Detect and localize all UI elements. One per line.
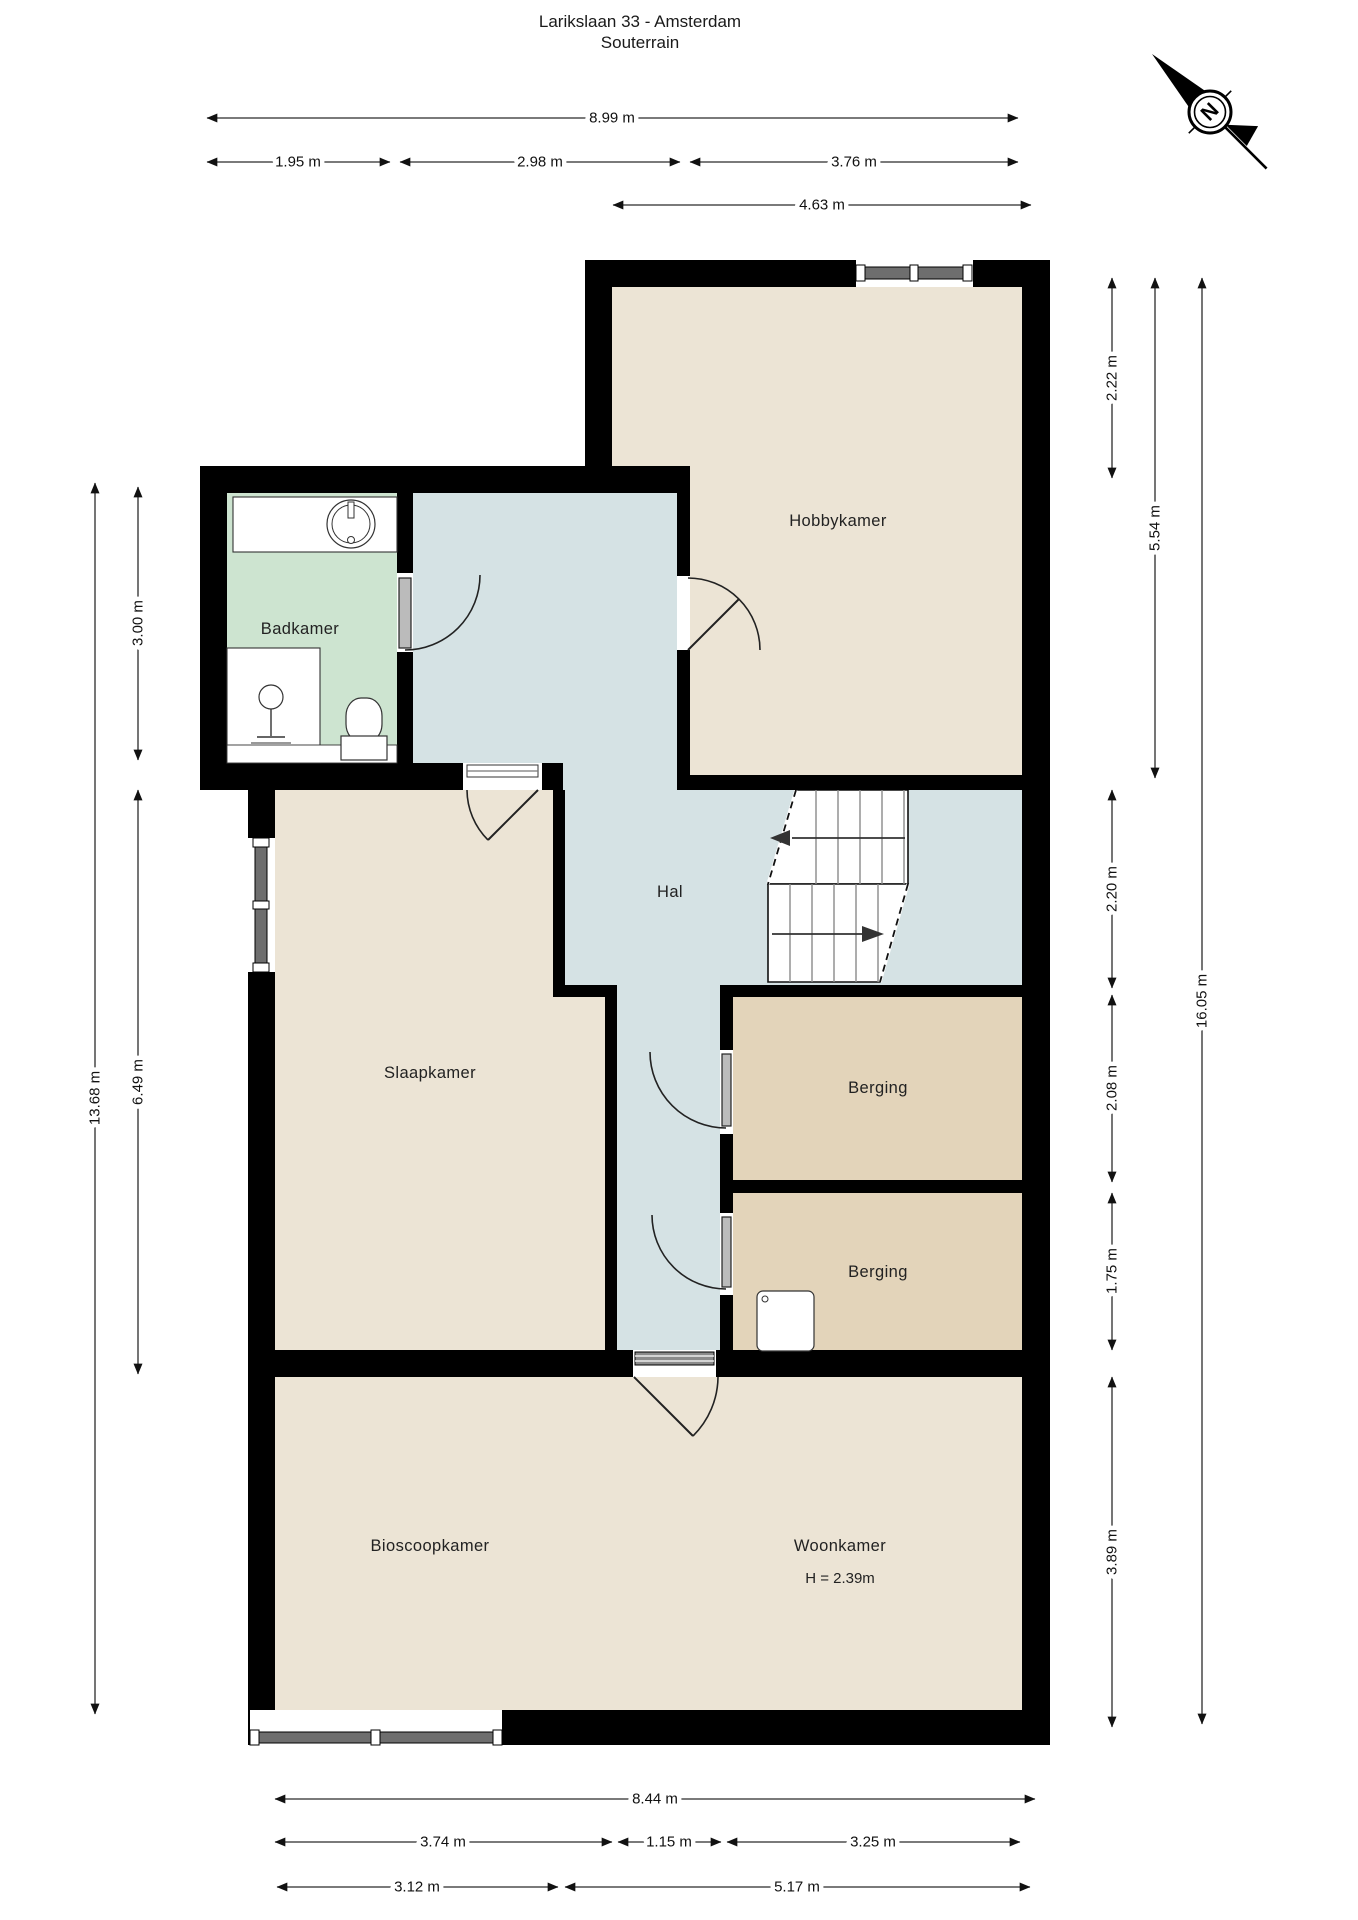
dimension-top-hobbykamer: 3.76 m [690, 154, 1018, 171]
dimension-label: 2.08 m [1104, 1065, 1121, 1111]
dimension-right-berging-boven: 2.08 m [1104, 995, 1121, 1182]
wall-segment [716, 1350, 1050, 1377]
dimension-top-hobby-block: 4.63 m [613, 197, 1031, 214]
floorplan-page: Larikslaan 33 - Amsterdam Souterrain [0, 0, 1358, 1920]
dimension-right-berging-onder: 1.75 m [1104, 1193, 1121, 1350]
dimension-bottom-overall: 8.44 m [275, 1791, 1035, 1808]
window-left-slaapkamer [248, 838, 275, 972]
room-hal-corridor-area [617, 985, 720, 1352]
dimension-label: 2.20 m [1104, 866, 1121, 912]
boiler-unit [757, 1291, 814, 1351]
window-jamb [253, 838, 269, 847]
dimension-label: 2.98 m [517, 154, 563, 171]
faucet-icon [348, 502, 354, 518]
floorplan-canvas: Larikslaan 33 - Amsterdam Souterrain [0, 0, 1358, 1920]
dimension-top-badkamer: 1.95 m [207, 154, 390, 171]
room-label-badkamer: Badkamer [261, 620, 340, 638]
dimension-label: 1.95 m [275, 154, 321, 171]
title-line2: Souterrain [601, 33, 679, 52]
room-label-berging-boven: Berging [848, 1079, 908, 1097]
wall-segment [585, 260, 612, 493]
title-line1: Larikslaan 33 - Amsterdam [539, 12, 741, 31]
dimension-bottom-slaap-width: 3.12 m [277, 1879, 558, 1896]
dimension-label: 2.22 m [1104, 355, 1121, 401]
dimension-label: 3.89 m [1104, 1529, 1121, 1575]
dimension-label: 3.12 m [394, 1879, 440, 1896]
room-label-berging-onder: Berging [848, 1263, 908, 1281]
dimension-bottom-right: 3.25 m [727, 1834, 1020, 1851]
wall-segment [200, 466, 227, 790]
dimension-label: 5.17 m [774, 1879, 820, 1896]
room-ceiling-height-note: H = 2.39m [805, 1570, 875, 1587]
door-leaf [722, 1054, 731, 1126]
window-mullion [371, 1730, 380, 1745]
dimension-left-badkamer: 3.00 m [130, 487, 147, 760]
dimension-label: 8.44 m [632, 1791, 678, 1808]
wall-segment [248, 1350, 633, 1377]
dimension-left-slaapkamer: 6.49 m [130, 790, 147, 1374]
wall-segment [200, 466, 690, 493]
drain-icon [348, 537, 355, 544]
window-jamb [963, 265, 972, 281]
dimension-label: 16.05 m [1194, 974, 1211, 1028]
window-bottom-bioscoopkamer [250, 1710, 502, 1746]
wall-segment [720, 1180, 1022, 1193]
door-threshold [635, 1352, 714, 1365]
dimension-label: 6.49 m [130, 1059, 147, 1105]
dimension-bottom-corridor: 1.15 m [618, 1834, 721, 1851]
wall-segment [720, 985, 1022, 997]
window-top-hobbykamer [856, 260, 973, 287]
dimension-right-stairs: 2.20 m [1104, 790, 1121, 988]
door-leaf [399, 578, 411, 648]
door-opening [677, 576, 690, 650]
dimension-top-overall: 8.99 m [207, 110, 1018, 127]
dimension-label: 4.63 m [799, 197, 845, 214]
plan-title: Larikslaan 33 - Amsterdam Souterrain [539, 12, 741, 52]
window-mullion [910, 265, 918, 281]
wall-segment [585, 260, 1050, 287]
dimension-label: 3.76 m [831, 154, 877, 171]
room-label-bioscoopkamer: Bioscoopkamer [371, 1537, 490, 1555]
window-jamb [856, 265, 865, 281]
wall-segment [553, 985, 617, 997]
dimension-left-overall: 13.68 m [87, 483, 104, 1714]
dimension-label: 1.15 m [646, 1834, 692, 1851]
room-hobbykamer-area [612, 287, 1022, 466]
room-label-woonkamer: Woonkamer [794, 1537, 886, 1555]
dimension-label: 13.68 m [87, 1071, 104, 1125]
dimension-label: 5.54 m [1147, 505, 1164, 551]
room-slaapkamer-area [553, 997, 607, 1350]
room-label-hal: Hal [657, 883, 683, 901]
compass-rose: N [1131, 33, 1288, 190]
room-hal-area [563, 493, 677, 790]
dimension-label: 3.74 m [420, 1834, 466, 1851]
dimension-right-overall: 16.05 m [1194, 278, 1211, 1724]
dimension-bottom-left: 3.74 m [275, 1834, 612, 1851]
dimension-label: 3.25 m [850, 1834, 896, 1851]
window-jamb [253, 963, 269, 972]
staircase [768, 790, 908, 982]
dimension-label: 1.75 m [1104, 1248, 1121, 1294]
boiler-valve-icon [762, 1296, 768, 1302]
room-label-hobbykamer: Hobbykamer [789, 512, 887, 530]
dimension-right-top-window: 2.22 m [1104, 278, 1121, 478]
window-jamb [250, 1730, 259, 1745]
dimension-bottom-woonkamer-width: 5.17 m [565, 1879, 1030, 1896]
wall-segment [553, 790, 565, 997]
window-jamb [493, 1730, 502, 1745]
wall-segment [677, 775, 1022, 790]
dimension-right-hobbykamer: 5.54 m [1147, 278, 1164, 778]
toilet-tank-icon [341, 736, 387, 760]
wall-segment [1022, 260, 1050, 1745]
dimension-right-woonkamer: 3.89 m [1104, 1377, 1121, 1727]
shower-head-icon [259, 685, 283, 709]
dimension-label: 3.00 m [130, 600, 147, 646]
room-label-slaapkamer: Slaapkamer [384, 1064, 476, 1082]
door-leaf [722, 1217, 731, 1287]
window-mullion [253, 901, 269, 909]
wall-segment [605, 997, 617, 1377]
dimension-label: 8.99 m [589, 110, 635, 127]
dimension-top-hal: 2.98 m [400, 154, 680, 171]
